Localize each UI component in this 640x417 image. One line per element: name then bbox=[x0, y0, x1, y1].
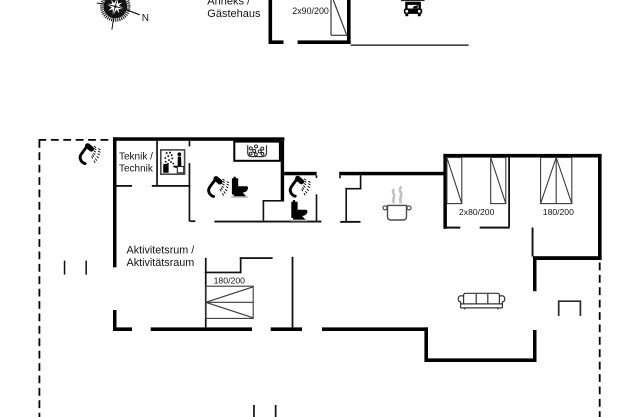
svg-text:Gästehaus: Gästehaus bbox=[207, 8, 261, 20]
svg-text:2x80/200: 2x80/200 bbox=[459, 207, 495, 217]
svg-text:180/200: 180/200 bbox=[214, 275, 246, 285]
svg-text:Anneks /: Anneks / bbox=[207, 0, 251, 8]
svg-text:N: N bbox=[142, 13, 149, 24]
svg-text:2x90/200: 2x90/200 bbox=[292, 6, 329, 16]
svg-text:180/200: 180/200 bbox=[543, 207, 574, 217]
svg-text:Technik: Technik bbox=[119, 164, 154, 175]
svg-text:Aktivitetsrum /: Aktivitetsrum / bbox=[127, 245, 195, 257]
svg-text:Aktivitätsraum: Aktivitätsraum bbox=[127, 257, 195, 269]
svg-text:Teknik /: Teknik / bbox=[119, 152, 153, 163]
